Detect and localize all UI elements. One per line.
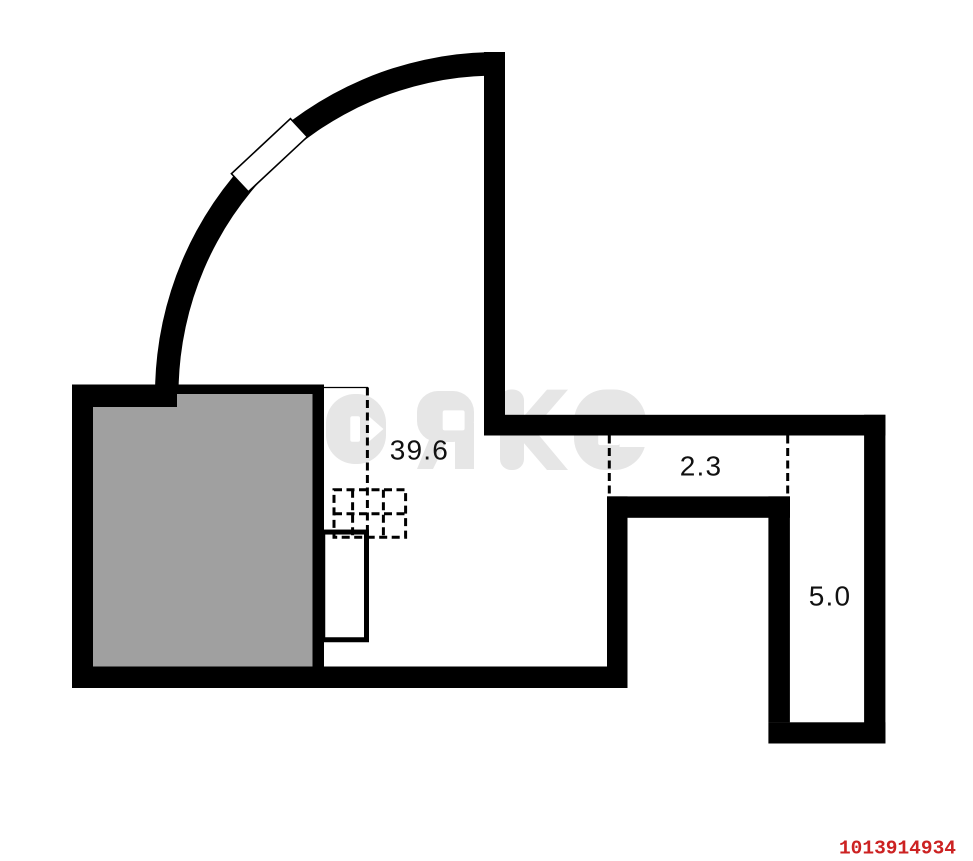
svg-text:39.6: 39.6 <box>390 434 449 465</box>
svg-text:5.0: 5.0 <box>809 581 852 612</box>
svg-text:2.3: 2.3 <box>680 450 723 481</box>
svg-text:1013914934: 1013914934 <box>839 838 956 860</box>
